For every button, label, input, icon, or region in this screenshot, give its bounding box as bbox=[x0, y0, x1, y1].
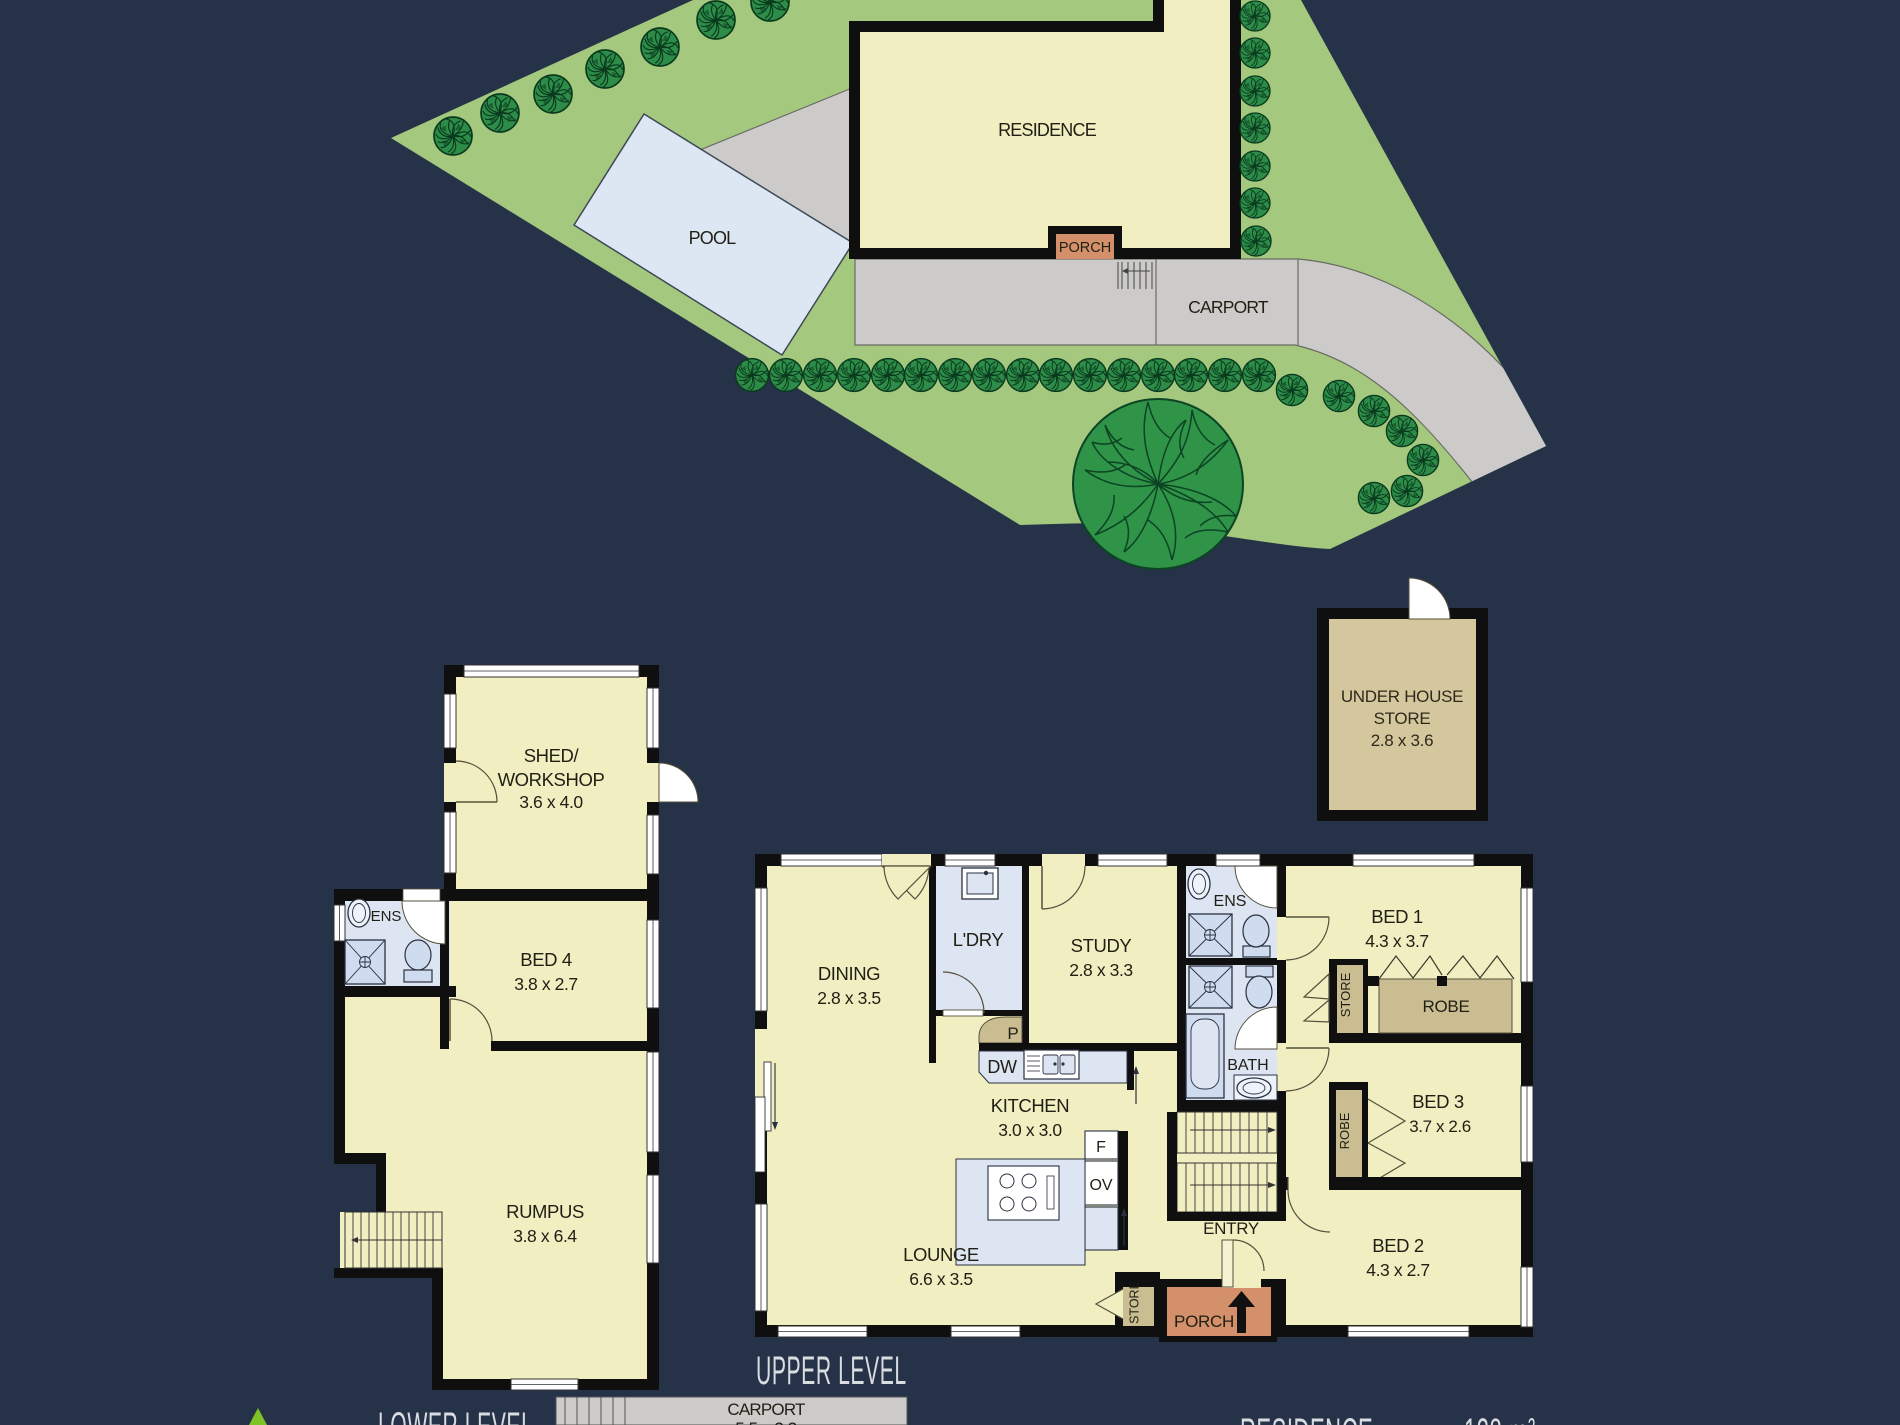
svg-text:ROBE: ROBE bbox=[1423, 997, 1470, 1016]
svg-text:BED 3: BED 3 bbox=[1412, 1091, 1464, 1112]
svg-text:POOL: POOL bbox=[689, 228, 737, 248]
svg-text:ROBE: ROBE bbox=[1337, 1112, 1352, 1149]
svg-text:ENTRY: ENTRY bbox=[1203, 1219, 1259, 1238]
svg-text:SHED/: SHED/ bbox=[524, 745, 580, 766]
svg-text:4.3 x 2.7: 4.3 x 2.7 bbox=[1366, 1260, 1430, 1280]
svg-text:STORE: STORE bbox=[1338, 972, 1353, 1017]
svg-text:P: P bbox=[1007, 1024, 1018, 1043]
svg-text:3.0 x 3.0: 3.0 x 3.0 bbox=[998, 1120, 1062, 1140]
svg-text:138 m²: 138 m² bbox=[1464, 1410, 1536, 1425]
svg-text:3.8 x 2.7: 3.8 x 2.7 bbox=[514, 974, 578, 994]
svg-text:UNDER HOUSE: UNDER HOUSE bbox=[1341, 687, 1463, 706]
svg-text:RESIDENCE: RESIDENCE bbox=[998, 120, 1097, 140]
svg-text:UPPER LEVEL: UPPER LEVEL bbox=[756, 1348, 907, 1393]
svg-text:STORE: STORE bbox=[1128, 1281, 1142, 1324]
svg-text:L'DRY: L'DRY bbox=[953, 929, 1004, 950]
svg-text:5.5 x 3.3: 5.5 x 3.3 bbox=[735, 1419, 797, 1425]
svg-text:RUMPUS: RUMPUS bbox=[506, 1201, 584, 1222]
svg-text:STORE: STORE bbox=[1374, 709, 1431, 728]
svg-text:BED 4: BED 4 bbox=[520, 949, 572, 970]
svg-text:STUDY: STUDY bbox=[1071, 935, 1132, 956]
svg-text:3.7 x 2.6: 3.7 x 2.6 bbox=[1409, 1117, 1471, 1136]
svg-text:ENS: ENS bbox=[371, 908, 402, 925]
svg-text:2.8 x 3.6: 2.8 x 3.6 bbox=[1371, 731, 1434, 750]
svg-text:CARPORT: CARPORT bbox=[1188, 297, 1269, 317]
svg-text:LOWER LEVEL: LOWER LEVEL bbox=[378, 1404, 533, 1425]
svg-text:PORCH: PORCH bbox=[1059, 240, 1111, 256]
svg-text:BATH: BATH bbox=[1227, 1057, 1268, 1074]
svg-text:6.6 x 3.5: 6.6 x 3.5 bbox=[909, 1269, 973, 1289]
svg-text:ENS: ENS bbox=[1214, 893, 1247, 910]
svg-text:WORKSHOP: WORKSHOP bbox=[498, 769, 605, 790]
svg-text:2.8 x 3.3: 2.8 x 3.3 bbox=[1069, 960, 1133, 980]
svg-text:3.6 x 4.0: 3.6 x 4.0 bbox=[519, 792, 583, 812]
svg-text:DINING: DINING bbox=[818, 963, 880, 984]
svg-text:CARPORT: CARPORT bbox=[727, 1400, 805, 1419]
svg-text:BED 2: BED 2 bbox=[1372, 1235, 1424, 1256]
svg-text:PORCH: PORCH bbox=[1174, 1312, 1234, 1331]
svg-text:RESIDENCE: RESIDENCE bbox=[1240, 1410, 1373, 1425]
svg-text:DW: DW bbox=[987, 1057, 1017, 1077]
svg-text:3.8 x 6.4: 3.8 x 6.4 bbox=[513, 1226, 577, 1246]
svg-text:2.8 x 3.5: 2.8 x 3.5 bbox=[817, 988, 881, 1008]
svg-text:4.3 x 3.7: 4.3 x 3.7 bbox=[1365, 931, 1429, 951]
svg-text:OV: OV bbox=[1089, 1177, 1112, 1194]
svg-text:BED 1: BED 1 bbox=[1371, 906, 1423, 927]
svg-text:LOUNGE: LOUNGE bbox=[903, 1244, 979, 1265]
svg-text:F: F bbox=[1096, 1139, 1106, 1156]
svg-text:KITCHEN: KITCHEN bbox=[991, 1095, 1069, 1116]
